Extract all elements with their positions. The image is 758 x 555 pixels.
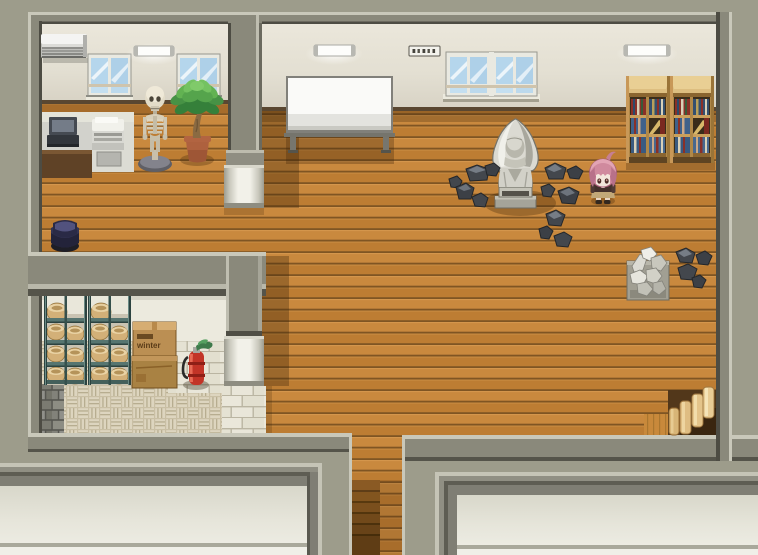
svg-text:winter: winter (136, 341, 161, 350)
